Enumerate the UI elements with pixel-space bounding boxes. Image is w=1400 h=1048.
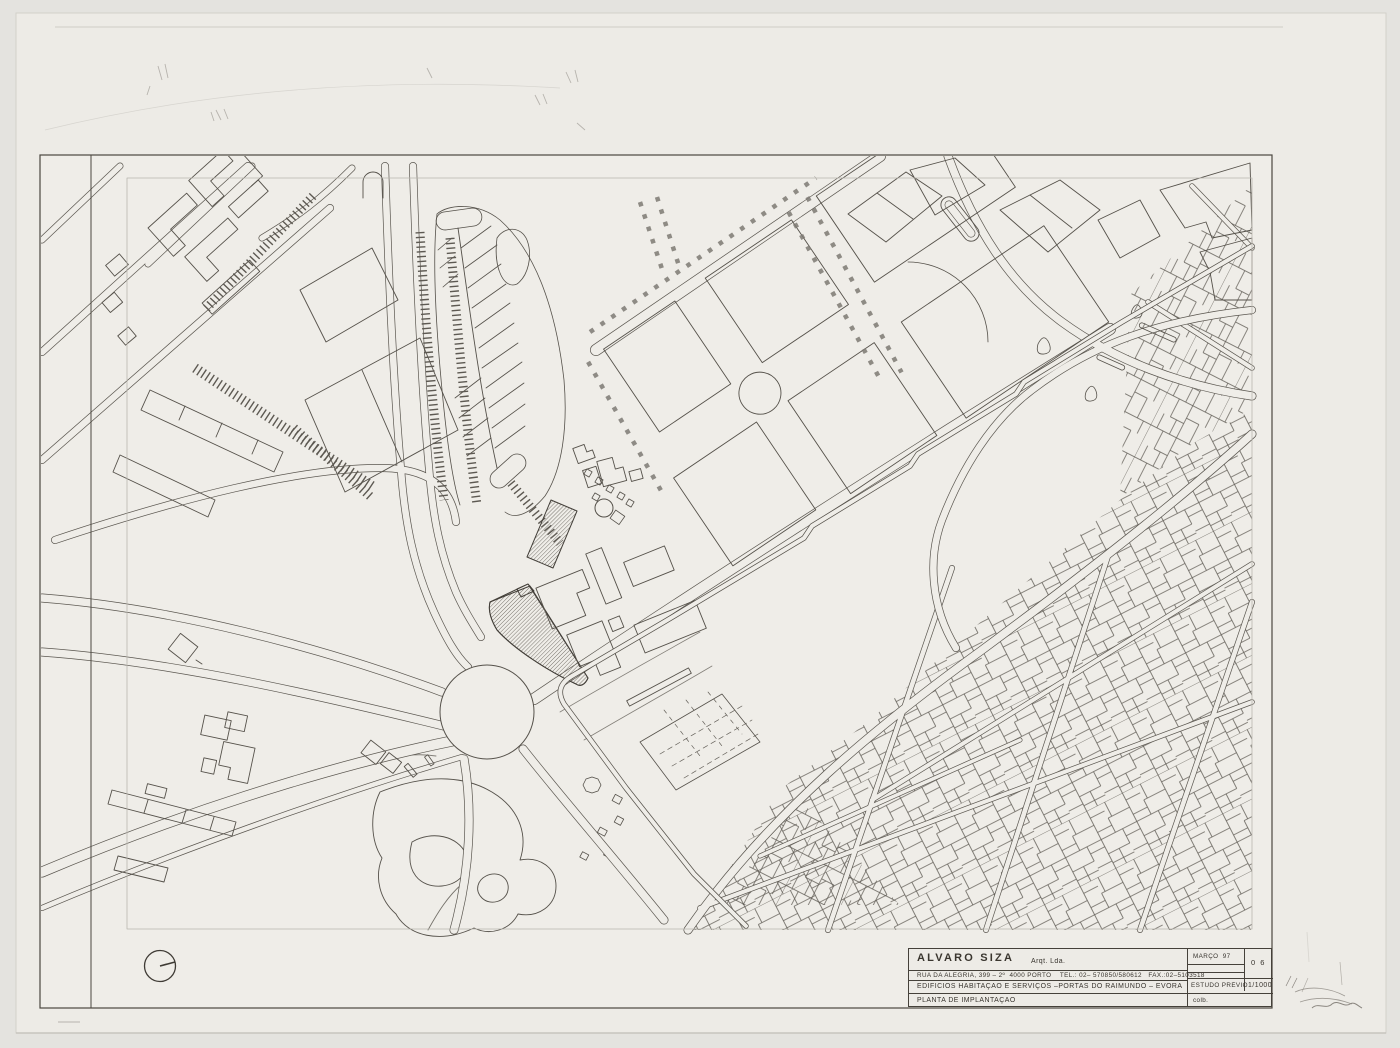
drawing-title: PLANTA DE IMPLANTAÇÃO bbox=[917, 997, 1016, 1004]
scale-field: 1/1000 bbox=[1248, 982, 1272, 989]
title-block: ALVARO SIZA Arqt. Lda. RUA DA ALEGRIA, 3… bbox=[908, 948, 1272, 1007]
phase-field: ESTUDO PRÉVIO bbox=[1191, 982, 1248, 989]
drawing-sheet: ALVARO SIZA Arqt. Lda. RUA DA ALEGRIA, 3… bbox=[0, 0, 1400, 1048]
project-line: EDIFICIOS HABITAÇÃO E SERVIÇOS –PORTAS D… bbox=[917, 983, 1183, 990]
date-field: MARÇO 97 bbox=[1193, 953, 1231, 960]
address-line: RUA DA ALEGRIA, 399 – 2º 4000 PORTO TEL.… bbox=[917, 972, 1205, 979]
architect-name: ALVARO SIZA bbox=[917, 952, 1014, 964]
site-plan-canvas bbox=[0, 0, 1400, 1048]
sheet-number: 0 6 bbox=[1251, 958, 1266, 967]
architect-suffix: Arqt. Lda. bbox=[1031, 958, 1065, 965]
collaborator-field: colb. bbox=[1193, 997, 1208, 1004]
